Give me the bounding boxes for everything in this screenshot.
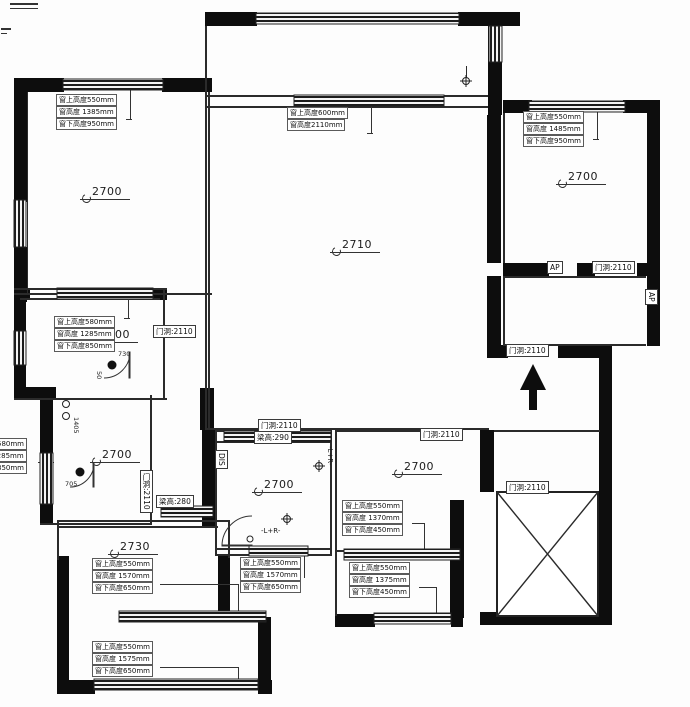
- dim-1405: 1405: [72, 417, 80, 434]
- window-label-line: 窗高度 1570mm: [92, 570, 153, 582]
- window-label-lower-left: 窗上高度580mm 窗高度 1285mm 窗下高度850mm: [0, 438, 27, 474]
- entry-arrow: [520, 364, 546, 410]
- room-height-living: 2710: [330, 238, 380, 253]
- window-label-line: 窗高度2110mm: [287, 119, 345, 131]
- lamp-label-side: -L+R-: [326, 446, 334, 465]
- beam-height-label: 梁高:280: [156, 495, 194, 508]
- window-label-line: 窗高度 1285mm: [0, 450, 27, 462]
- ap-tag: AP: [645, 289, 658, 305]
- window-label-line: 窗下高度950mm: [523, 135, 584, 147]
- room-height-bath: 2700: [252, 478, 302, 493]
- dim-730: 730: [118, 350, 130, 358]
- window-label-line: 窗下高度450mm: [342, 524, 403, 536]
- ap-tag: AP: [547, 261, 563, 274]
- window-label-line: 窗高度 1385mm: [56, 106, 117, 118]
- window-label-line: 窗下高度650mm: [92, 665, 153, 677]
- window-label-line: 窗高度 1575mm: [92, 653, 153, 665]
- beam-height-label: 梁高:290: [254, 431, 292, 444]
- window-label-line: 窗高度 1375mm: [349, 574, 410, 586]
- window-label-mid-left: 窗上高度580mm 窗高度 1285mm 窗下高度850mm: [54, 316, 115, 352]
- room-height-value: 2700: [264, 478, 294, 491]
- window-label-line: 窗下高度450mm: [349, 586, 410, 598]
- dim-705: 705: [65, 480, 77, 488]
- window-label-line: 窗上高度580mm: [0, 438, 27, 450]
- room-height-value: 2730: [120, 540, 150, 553]
- window-label-living: 窗上高度600mm 窗高度2110mm: [287, 107, 348, 131]
- window-label-line: 窗高度 1285mm: [54, 328, 115, 340]
- window-label-line: 窗上高度600mm: [287, 107, 348, 119]
- floor-plan: 窗上高度550mm 窗高度 1385mm 窗下高度950mm 窗上高度600mm…: [0, 0, 690, 707]
- door-opening-label: 门洞:2110: [140, 470, 153, 513]
- room-height-top-right: 2700: [556, 170, 606, 185]
- window-label-line: 窗高度 1570mm: [240, 569, 301, 581]
- window-label-bottom-left-1: 窗上高度550mm 窗高度 1570mm 窗下高度650mm: [92, 558, 153, 594]
- window-label-line: 窗上高度550mm: [56, 94, 117, 106]
- window-label-line: 窗下高度950mm: [56, 118, 117, 130]
- dis-tag: DIS: [215, 450, 228, 469]
- room-height-value: 2700: [102, 448, 132, 461]
- room-height-value: 2700: [568, 170, 598, 183]
- room-height-value: 2700: [92, 185, 122, 198]
- lamp-label-bottom: -L+R-: [261, 527, 280, 535]
- room-height-value: 2710: [342, 238, 372, 251]
- window-label-line: 窗上高度580mm: [54, 316, 115, 328]
- window-label-top-left: 窗上高度550mm 窗高度 1385mm 窗下高度950mm: [56, 94, 117, 130]
- room-height-bottom-mid: 2700: [392, 460, 442, 475]
- door-opening-label: 门洞:2110: [420, 428, 463, 441]
- window-label-line: 窗上高度550mm: [523, 111, 584, 123]
- window-label-line: 窗下高度650mm: [92, 582, 153, 594]
- corner-marks: [1, 3, 38, 34]
- ceiling-lamp-symbols: [281, 75, 472, 525]
- elevator-shaft-x: [497, 492, 598, 616]
- window-label-bottom-mid-2: 窗上高度550mm 窗高度 1375mm 窗下高度450mm: [349, 562, 410, 598]
- window-label-bottom-left-2: 窗上高度550mm 窗高度 1575mm 窗下高度650mm: [92, 641, 153, 677]
- window-label-line: 窗高度 1370mm: [342, 512, 403, 524]
- window-label-line: 窗下高度850mm: [0, 462, 27, 474]
- room-height-value: 2700: [404, 460, 434, 473]
- room-height-top-left: 2700: [80, 185, 130, 200]
- door-opening-label: 门洞:2110: [506, 344, 549, 357]
- door-opening-label: 门洞:2110: [153, 325, 196, 338]
- window-label-line: 窗下高度850mm: [54, 340, 115, 352]
- window-label-line: 窗上高度550mm: [92, 558, 153, 570]
- window-label-bottom-mid-1: 窗上高度550mm 窗高度 1370mm 窗下高度450mm: [342, 500, 403, 536]
- window-label-bottom-center: 窗上高度550mm 窗高度 1570mm 窗下高度650mm: [240, 557, 301, 593]
- dim-50: 50: [95, 371, 103, 379]
- window-label-line: 窗上高度550mm: [342, 500, 403, 512]
- window-label-line: 窗上高度550mm: [240, 557, 301, 569]
- window-label-line: 窗上高度550mm: [92, 641, 153, 653]
- door-opening-label: 门洞:2110: [592, 261, 635, 274]
- window-label-top-right: 窗上高度550mm 窗高度 1485mm 窗下高度950mm: [523, 111, 584, 147]
- room-height-lower-left: 2700: [90, 448, 140, 463]
- window-label-line: 窗上高度550mm: [349, 562, 410, 574]
- room-height-bottom-left: 2730: [108, 540, 158, 555]
- window-label-line: 窗下高度650mm: [240, 581, 301, 593]
- window-label-line: 窗高度 1485mm: [523, 123, 584, 135]
- door-opening-label: 门洞:2110: [506, 481, 549, 494]
